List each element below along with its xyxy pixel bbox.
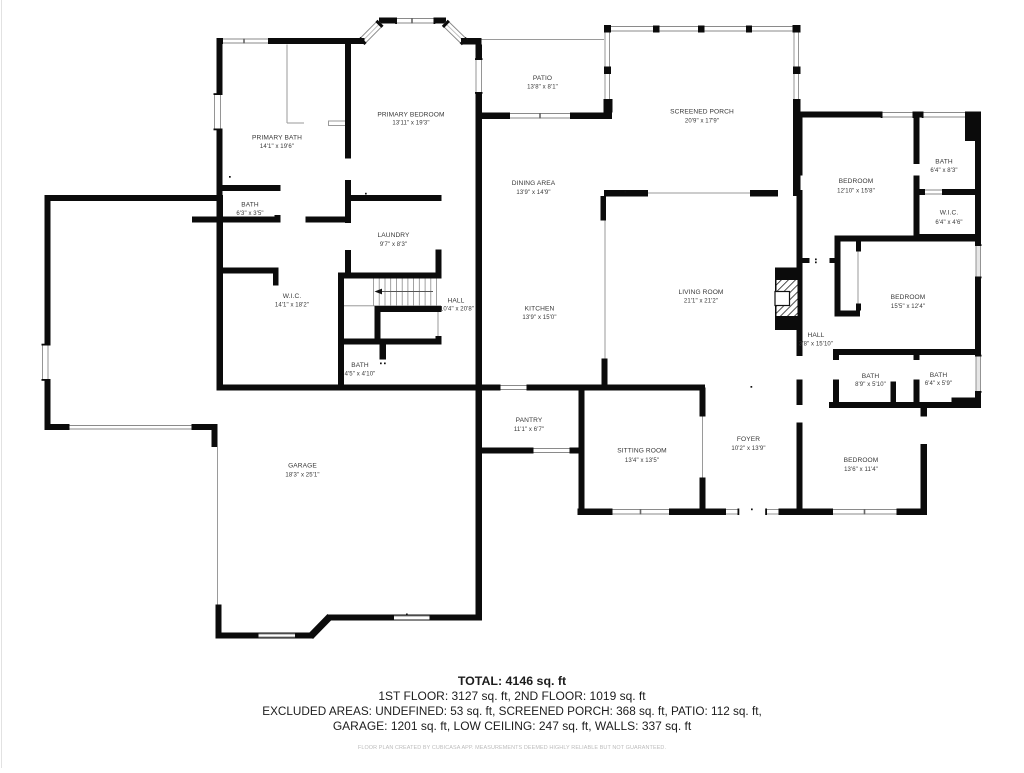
svg-text:HALL: HALL — [448, 298, 465, 305]
svg-text:4'5" x 4'10": 4'5" x 4'10" — [345, 372, 376, 378]
svg-text:LAUNDRY: LAUNDRY — [377, 232, 410, 239]
svg-text:9'7" x 8'3": 9'7" x 8'3" — [380, 242, 407, 248]
svg-text:21'1" x 21'2": 21'1" x 21'2" — [684, 299, 718, 305]
svg-text:GARAGE: 1201 sq. ft, LOW CEILI: GARAGE: 1201 sq. ft, LOW CEILING: 247 sq… — [333, 719, 692, 733]
svg-text:6'4" x 8'3": 6'4" x 8'3" — [930, 168, 957, 174]
svg-text:BATH: BATH — [935, 159, 953, 166]
svg-text:W.I.C.: W.I.C. — [940, 210, 959, 217]
svg-text:PATIO: PATIO — [533, 75, 552, 82]
svg-text:1ST FLOOR: 3127 sq. ft, 2ND FL: 1ST FLOOR: 3127 sq. ft, 2ND FLOOR: 1019 … — [378, 689, 646, 703]
svg-text:14'1" x 18'2": 14'1" x 18'2" — [275, 303, 309, 309]
svg-text:18'3" x 25'1": 18'3" x 25'1" — [285, 473, 319, 479]
svg-text:TOTAL: 4146 sq. ft: TOTAL: 4146 sq. ft — [458, 674, 566, 688]
svg-text:BEDROOM: BEDROOM — [891, 294, 926, 301]
svg-text:20'9" x 17'9": 20'9" x 17'9" — [685, 119, 719, 125]
svg-text:W.I.C.: W.I.C. — [283, 293, 302, 300]
svg-text:BATH: BATH — [351, 362, 369, 369]
svg-text:14'1" x 19'6": 14'1" x 19'6" — [260, 144, 294, 150]
svg-text:6'3" x 3'5": 6'3" x 3'5" — [236, 211, 263, 217]
svg-text:PANTRY: PANTRY — [516, 417, 543, 424]
svg-text:BATH: BATH — [930, 372, 948, 379]
svg-text:BEDROOM: BEDROOM — [839, 178, 874, 185]
svg-text:SCREENED PORCH: SCREENED PORCH — [670, 109, 734, 116]
svg-text:12'10" x 15'8": 12'10" x 15'8" — [837, 189, 875, 195]
svg-text:11'1" x 6'7": 11'1" x 6'7" — [514, 427, 544, 433]
svg-text:PRIMARY BATH: PRIMARY BATH — [252, 135, 302, 142]
svg-text:PRIMARY BEDROOM: PRIMARY BEDROOM — [377, 112, 444, 119]
svg-text:LIVING ROOM: LIVING ROOM — [678, 289, 723, 296]
svg-text:SITTING ROOM: SITTING ROOM — [617, 448, 667, 455]
svg-text:GARAGE: GARAGE — [288, 463, 317, 470]
svg-text:10'4" x 20'8": 10'4" x 20'8" — [440, 307, 474, 313]
svg-text:HALL: HALL — [808, 332, 825, 339]
svg-text:BATH: BATH — [241, 202, 259, 209]
svg-text:6'4" x 5'9": 6'4" x 5'9" — [925, 381, 952, 387]
svg-text:3'8" x 15'10": 3'8" x 15'10" — [799, 342, 833, 348]
svg-text:BEDROOM: BEDROOM — [844, 457, 879, 464]
svg-text:BATH: BATH — [862, 373, 880, 380]
svg-text:13'9" x 15'0": 13'9" x 15'0" — [522, 315, 556, 321]
svg-text:EXCLUDED AREAS: UNDEFINED: 53: EXCLUDED AREAS: UNDEFINED: 53 sq. ft, SC… — [262, 705, 762, 718]
svg-text:13'11" x 19'3": 13'11" x 19'3" — [392, 121, 429, 127]
svg-text:8'9" x 5'10": 8'9" x 5'10" — [855, 382, 886, 388]
svg-text:13'6" x 11'4": 13'6" x 11'4" — [844, 467, 878, 473]
svg-text:DINING AREA: DINING AREA — [512, 180, 556, 187]
svg-text:6'4" x 4'6": 6'4" x 4'6" — [935, 220, 962, 226]
svg-text:FOYER: FOYER — [737, 436, 760, 443]
svg-text:15'5" x 12'4": 15'5" x 12'4" — [891, 304, 925, 310]
svg-text:13'9" x 14'9": 13'9" x 14'9" — [516, 190, 550, 196]
svg-text:FLOOR PLAN CREATED BY CUBICASA: FLOOR PLAN CREATED BY CUBICASA APP. MEAS… — [358, 745, 667, 751]
svg-text:10'2" x 13'9": 10'2" x 13'9" — [731, 446, 765, 452]
svg-text:KITCHEN: KITCHEN — [525, 306, 555, 313]
svg-text:13'8" x 8'1": 13'8" x 8'1" — [527, 85, 558, 91]
svg-text:13'4" x 13'5": 13'4" x 13'5" — [625, 458, 659, 464]
